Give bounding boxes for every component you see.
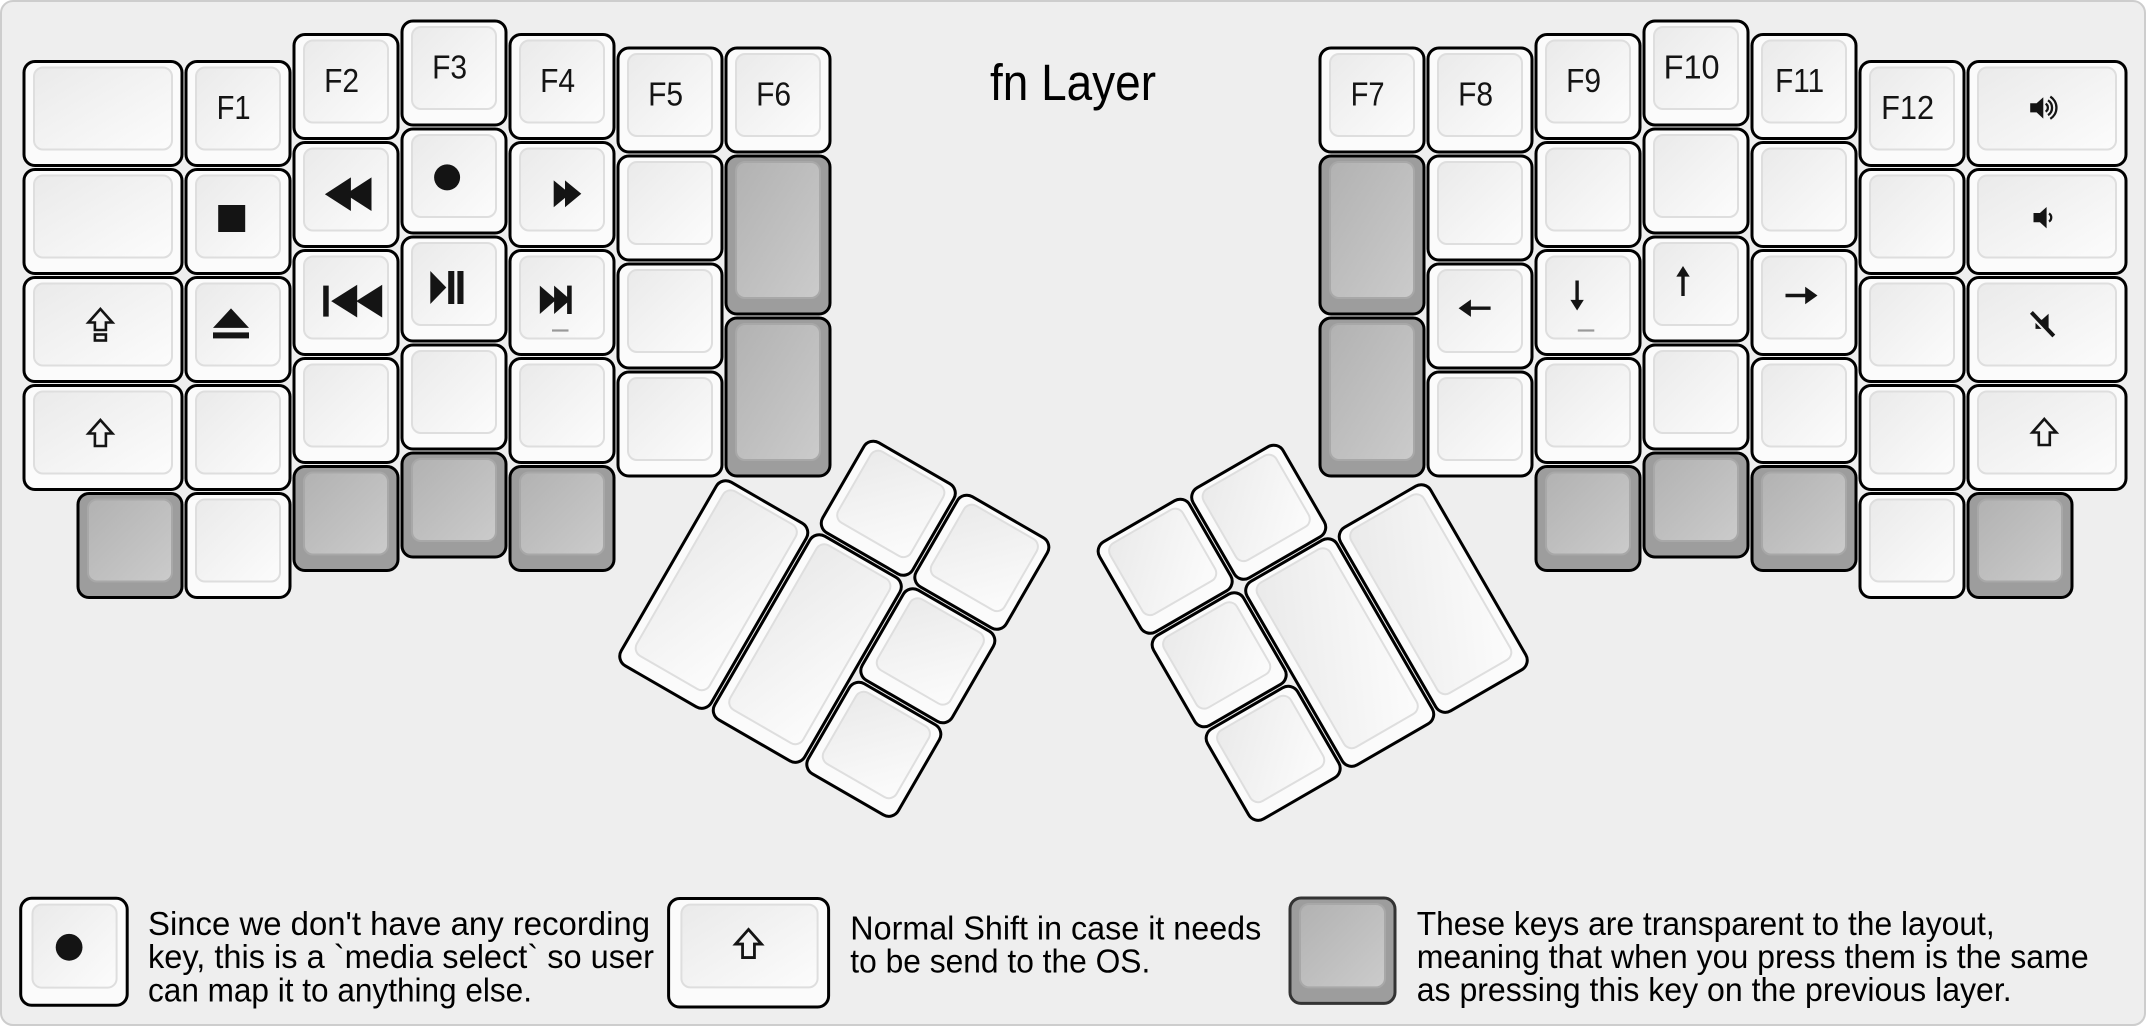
svg-text:F10: F10 xyxy=(1664,48,1720,85)
svg-text:F5: F5 xyxy=(648,75,683,112)
svg-text:fn Layer: fn Layer xyxy=(990,54,1156,111)
svg-text:to be send to the OS.: to be send to the OS. xyxy=(850,943,1150,980)
svg-text:F6: F6 xyxy=(756,75,791,112)
svg-text:meaning that when you press th: meaning that when you press them is the … xyxy=(1417,938,2089,975)
svg-text:key, this is a `media select`: key, this is a `media select` so user xyxy=(148,938,654,975)
svg-text:F7: F7 xyxy=(1351,75,1385,112)
svg-text:as pressing this key on the pr: as pressing this key on the previous lay… xyxy=(1417,971,2012,1008)
svg-text:can map it to anything else.: can map it to anything else. xyxy=(148,971,532,1008)
svg-text:F3: F3 xyxy=(432,48,467,85)
svg-text:F4: F4 xyxy=(540,62,575,99)
svg-text:F12: F12 xyxy=(1881,89,1934,126)
svg-text:These keys are transparent to: These keys are transparent to the layout… xyxy=(1417,905,1995,942)
svg-text:F9: F9 xyxy=(1566,62,1601,99)
svg-text:F1: F1 xyxy=(217,89,251,126)
svg-text:Normal Shift in case it needs: Normal Shift in case it needs xyxy=(850,909,1261,946)
svg-text:Since we don't have any record: Since we don't have any recording xyxy=(148,905,650,942)
svg-text:F11: F11 xyxy=(1775,62,1824,99)
svg-text:F2: F2 xyxy=(324,62,359,99)
svg-text:F8: F8 xyxy=(1458,75,1493,112)
